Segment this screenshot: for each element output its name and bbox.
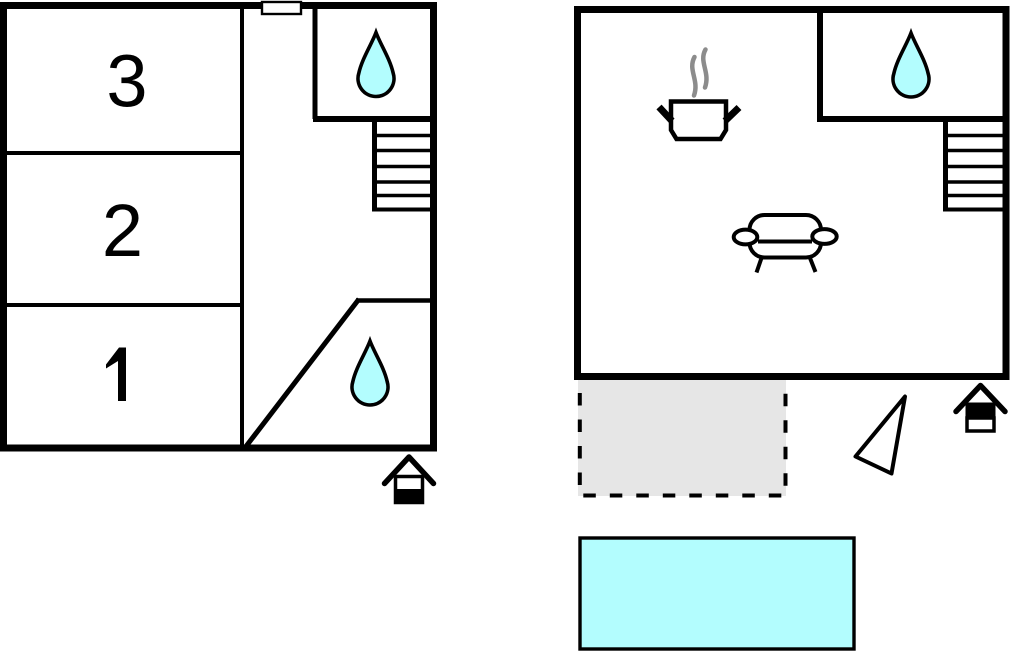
svg-text:3: 3 [106,40,147,123]
svg-text:2: 2 [102,189,143,272]
